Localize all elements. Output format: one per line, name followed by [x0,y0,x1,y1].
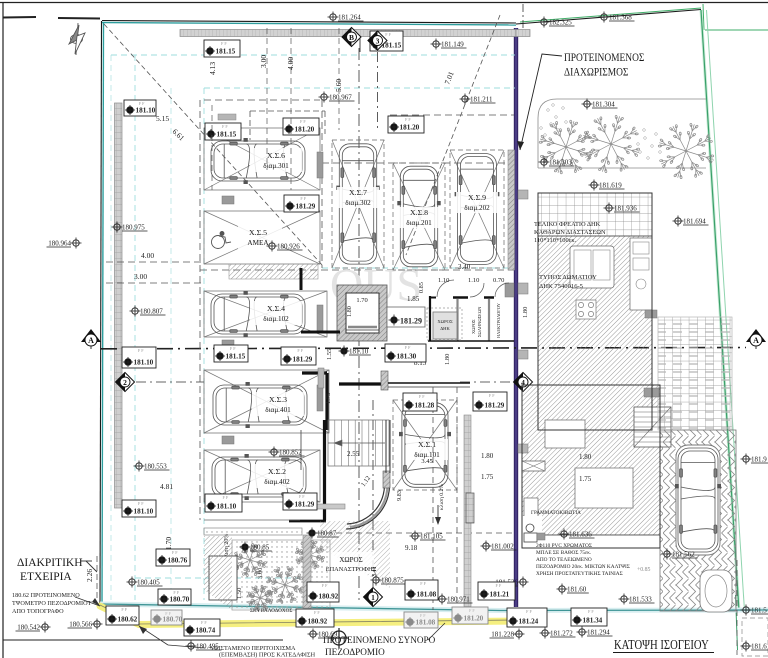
svg-text:F F: F F [222,124,228,129]
svg-text:ΓΡΑΜΜΑΤΟΚΙΒΩΤΙΑ: ΓΡΑΜΜΑΤΟΚΙΒΩΤΙΑ [531,510,581,516]
svg-text:181.34: 181.34 [583,617,603,625]
svg-text:ΚΑΘΑΡΩΝ ΔΙΑΣΤΑΣΕΩΝ: ΚΑΘΑΡΩΝ ΔΙΑΣΤΑΣΕΩΝ [534,229,606,236]
svg-text:1.80: 1.80 [579,453,592,461]
svg-text:διαμ.202: διαμ.202 [464,204,490,212]
svg-text:181.20: 181.20 [464,615,484,623]
svg-text:180.76: 180.76 [168,557,188,565]
svg-text:1.75: 1.75 [579,475,592,483]
svg-text:181.29: 181.29 [295,501,315,509]
svg-text:Χ.Σ.2: Χ.Σ.2 [268,467,286,476]
svg-text:181.08: 181.08 [417,591,437,599]
svg-text:F F: F F [322,583,328,588]
svg-text:F F: F F [299,494,305,499]
svg-text:180.70: 180.70 [170,596,190,604]
svg-text:180.85: 180.85 [250,544,270,552]
svg-text:F F: F F [297,348,303,353]
svg-text:F F: F F [405,117,411,122]
svg-text:1.85: 1.85 [407,295,420,303]
svg-text:F F: F F [201,620,207,625]
svg-text:180.74: 180.74 [196,627,216,635]
svg-text:181.6: 181.6 [751,643,767,651]
svg-text:180.542: 180.542 [17,624,40,632]
svg-text:181.694: 181.694 [683,218,706,226]
svg-text:2.55: 2.55 [347,450,360,458]
svg-text:181.15: 181.15 [217,131,237,139]
svg-text:181.29: 181.29 [485,402,505,410]
svg-text:ΠΡΟΤΕΙΝΟΜΕΝΟΣ: ΠΡΟΤΕΙΝΟΜΕΝΟΣ [564,51,644,64]
svg-text:181.15: 181.15 [216,48,236,56]
svg-text:F F: F F [230,346,236,351]
svg-text:180.971: 180.971 [447,596,470,604]
svg-text:9.18: 9.18 [405,544,418,552]
svg-text:Χ.Σ.6: Χ.Σ.6 [267,151,285,160]
svg-text:ΜΠΛΕ ΣΕ ΒΑΘΟΣ 75εκ.: ΜΠΛΕ ΣΕ ΒΑΘΟΣ 75εκ. [536,550,591,556]
svg-text:181.636: 181.636 [569,531,592,539]
svg-text:181.264: 181.264 [338,14,361,22]
svg-text:F F: F F [139,101,145,106]
svg-text:4.81: 4.81 [160,482,173,491]
svg-text:ΧΡΗΣΗ ΠΡΟΣΤΑΤΕΥΤΙΚΗΣ ΤΑΙΝΙΑΣ: ΧΡΗΣΗ ΠΡΟΣΤΑΤΕΥΤΙΚΗΣ ΤΑΙΝΙΑΣ [536,571,623,577]
svg-text:181.10: 181.10 [134,508,154,516]
svg-text:F F: F F [496,583,502,588]
svg-text:180.926: 180.926 [277,243,300,251]
svg-text:Χ.Σ.8: Χ.Σ.8 [410,208,428,217]
svg-text:1.80: 1.80 [346,306,353,317]
svg-text:1.80: 1.80 [522,307,529,318]
svg-text:1.10: 1.10 [438,277,449,284]
svg-text:0.85: 0.85 [418,282,425,293]
svg-text:181.29: 181.29 [296,203,316,211]
svg-text:F F: F F [138,348,144,353]
svg-text:181.228: 181.228 [491,631,514,639]
svg-text:180.92: 180.92 [319,593,339,601]
svg-text:B: B [349,33,354,42]
svg-text:3.00: 3.00 [134,272,147,281]
svg-text:F F: F F [419,394,425,399]
svg-text:181.619: 181.619 [599,182,622,190]
svg-text:3.00: 3.00 [257,568,264,579]
svg-text:ΣΚΥΒΑΛΟΔΟΧΟΣ: ΣΚΥΒΑΛΟΔΟΧΟΣ [250,608,292,614]
svg-text:181.304: 181.304 [592,101,615,109]
svg-text:181.533: 181.533 [629,596,652,604]
svg-text:180.405: 180.405 [137,579,160,587]
svg-text:Χ.Σ.7: Χ.Σ.7 [349,188,367,197]
svg-text:F F: F F [385,32,391,37]
svg-text:181.294: 181.294 [587,629,610,637]
svg-text:F F: F F [420,613,426,618]
svg-text:F F: F F [222,495,228,500]
svg-text:181.272: 181.272 [550,630,573,638]
svg-text:181.105: 181.105 [420,533,443,541]
svg-text:ΣΩΛΗΝΩΣΕΩΝ: ΣΩΛΗΝΩΣΕΩΝ [477,306,482,337]
svg-text:110*110*100εκ.: 110*110*100εκ. [534,237,577,244]
svg-text:181.20: 181.20 [295,126,315,134]
svg-text:F F: F F [300,119,306,124]
svg-text:F F: F F [420,581,426,586]
svg-text:F F: F F [221,41,227,46]
svg-text:182.325: 182.325 [549,19,572,27]
svg-text:180.92: 180.92 [308,618,328,626]
svg-text:180.967: 180.967 [329,94,352,102]
svg-text:F F: F F [138,501,144,506]
svg-text:1.80: 1.80 [481,452,494,460]
svg-text:F F: F F [469,608,475,613]
svg-text:A: A [753,336,759,345]
svg-text:181.29: 181.29 [400,317,422,326]
svg-text:180.566: 180.566 [69,621,92,629]
svg-text:ΠΡΟΤΕΙΝΟΜΕΝΟ ΣΥΝΟΡΟ: ΠΡΟΤΕΙΝΟΜΕΝΟ ΣΥΝΟΡΟ [323,635,436,645]
svg-text:181.211: 181.211 [470,96,493,104]
svg-text:Χ.Σ.9: Χ.Σ.9 [468,193,486,202]
svg-text:διαμ.401: διαμ.401 [265,406,291,414]
svg-text:181.28: 181.28 [415,402,435,410]
svg-text:181.002: 181.002 [491,543,514,551]
svg-text:181.10: 181.10 [134,359,154,367]
svg-text:1.75: 1.75 [325,393,332,404]
svg-text:180.70: 180.70 [163,616,183,624]
svg-text:F F: F F [314,610,320,615]
svg-text:180.62 ΠΡΟΤΕΙΝΟΜΕΝΟ: 180.62 ΠΡΟΤΕΙΝΟΜΕΝΟ [12,592,80,599]
svg-text:180.807: 180.807 [140,308,163,316]
svg-text:F F: F F [588,609,594,614]
svg-text:ΠΕΖΟΔΡΟΜΙΟ 20εκ. ΜΙΚΤΩΝ ΚΑΛΤΨΙ: ΠΕΖΟΔΡΟΜΙΟ 20εκ. ΜΙΚΤΩΝ ΚΑΛΤΨΙΣ [536,564,630,570]
svg-text:180.852: 180.852 [279,449,302,457]
svg-text:3.40: 3.40 [458,263,471,271]
svg-text:ΔΗΚ: ΔΗΚ [440,326,450,331]
svg-text:3.45: 3.45 [421,458,432,465]
svg-text:(ΕΠΕΜΒΑΣΗ) ΠΡΟΣ ΚΑΤΕΔΑΦΙΣΗ: (ΕΠΕΜΒΑΣΗ) ΠΡΟΣ ΚΑΤΕΔΑΦΙΣΗ [219,652,316,658]
svg-text:5.15: 5.15 [156,114,169,123]
svg-text:181.15: 181.15 [226,353,246,361]
svg-text:181.5: 181.5 [751,607,767,615]
svg-text:181.149: 181.149 [441,41,464,49]
svg-text:180.964: 180.964 [48,240,71,248]
svg-text:Χ.Σ.5: Χ.Σ.5 [249,228,267,237]
svg-text:ΤΨΟΜΕΤΡΟ ΠΕΖΟΔΡΟΜΙΟΤ: ΤΨΟΜΕΤΡΟ ΠΕΖΟΔΡΟΜΙΟΤ [12,600,92,607]
svg-text:1.55: 1.55 [326,349,333,360]
svg-text:1.75: 1.75 [481,473,494,481]
svg-text:ΧΩΡΟΣ: ΧΩΡΟΣ [339,556,362,564]
svg-text:ΧΩΡΟΣ: ΧΩΡΟΣ [437,319,453,324]
svg-text:181.29: 181.29 [293,356,313,364]
svg-text:181.20: 181.20 [400,124,420,132]
svg-text:1.70: 1.70 [164,537,173,550]
svg-text:κλιση 0.2%: κλιση 0.2% [439,484,445,510]
svg-text:181.936: 181.936 [614,205,637,213]
svg-text:180.875: 180.875 [381,577,404,585]
svg-text:3.41: 3.41 [372,567,378,578]
svg-text:181.08: 181.08 [416,619,436,627]
svg-text:180.553: 180.553 [144,463,167,471]
svg-text:διαμ.302: διαμ.302 [345,199,371,207]
svg-text:ΑΠΟ ΤΟ ΤΕΛΕΙΩΜΕΝΟ: ΑΠΟ ΤΟ ΤΕΛΕΙΩΜΕΝΟ [536,557,592,563]
svg-text:ΔΗΚ 7540016-5: ΔΗΚ 7540016-5 [539,283,584,290]
svg-text:181.21: 181.21 [490,591,510,599]
svg-text:διαμ.402: διαμ.402 [264,478,290,486]
svg-text:181.368: 181.368 [609,14,632,22]
svg-text:διαμ.102: διαμ.102 [263,315,289,323]
svg-text:ΤΥΠΟΣ ΔΩΜΑΤΙΟΥ: ΤΥΠΟΣ ΔΩΜΑΤΙΟΥ [539,274,597,281]
svg-text:F F: F F [405,345,411,350]
svg-text:A: A [88,336,94,345]
svg-text:ΕΤΧΕΙΡΙΑ: ΕΤΧΕΙΡΙΑ [20,571,72,583]
svg-text:181.10: 181.10 [349,348,369,356]
svg-text:4.00: 4.00 [141,251,154,260]
svg-text:1.80: 1.80 [444,354,451,365]
svg-text:181.24: 181.24 [519,618,539,626]
svg-text:1.50: 1.50 [236,588,243,599]
svg-text:180.975: 180.975 [122,224,145,232]
svg-text:ΔΙΑΧΩΡΙΣΜΟΣ: ΔΙΑΧΩΡΙΣΜΟΣ [564,66,628,79]
svg-text:4.13: 4.13 [208,62,217,75]
svg-text:1.10: 1.10 [468,277,479,284]
svg-text:ΑΠΟ ΤΟΠΟΓΡΑΦΟ: ΑΠΟ ΤΟΠΟΓΡΑΦΟ [12,608,64,615]
svg-text:181.9: 181.9 [751,456,767,464]
svg-text:διαμ.201: διαμ.201 [406,219,432,227]
svg-text:ΔΙΑΚΡΙΤΙΚΗ: ΔΙΑΚΡΙΤΙΚΗ [17,557,83,569]
svg-text:F F: F F [173,590,179,595]
svg-text:ΠΕΖΟΔΡΟΜΙΟ: ΠΕΖΟΔΡΟΜΙΟ [325,647,385,657]
svg-text:9.83: 9.83 [396,490,403,501]
svg-text:+0.85: +0.85 [637,567,651,573]
svg-text:180.87: 180.87 [317,530,337,538]
svg-text:181.562: 181.562 [672,551,695,559]
svg-text:181.30: 181.30 [397,353,417,361]
svg-text:ΕΠΑΝΑΣΤΡΟΦΗΣ: ΕΠΑΝΑΣΤΡΟΦΗΣ [326,566,377,573]
svg-text:181.10: 181.10 [217,503,237,511]
svg-text:Χ.Σ.3: Χ.Σ.3 [269,395,287,404]
svg-text:2: 2 [123,378,127,387]
svg-text:F F: F F [300,196,306,201]
svg-text:5.60: 5.60 [334,79,343,92]
svg-text:181.303: 181.303 [549,159,572,167]
svg-text:ΗΛΕΚΤΡΟΛΟΓΟΥ: ΗΛΕΚΤΡΟΛΟΓΟΥ [496,302,501,338]
svg-text:ΑΜΕΑ: ΑΜΕΑ [247,239,269,247]
svg-text:1: 1 [371,593,375,602]
svg-text:180.62: 180.62 [118,616,138,624]
svg-text:2.26: 2.26 [85,569,94,582]
svg-text:0.70: 0.70 [493,277,504,284]
svg-text:F F: F F [121,607,127,612]
svg-text:181.10: 181.10 [136,107,156,115]
svg-text:4.00: 4.00 [286,57,295,70]
svg-text:F F: F F [526,609,532,614]
svg-text:1.70: 1.70 [356,297,367,304]
svg-text:181.60: 181.60 [567,586,587,594]
svg-text:ΚΑΤΟΨΗ ΙΣΟΓΕΙΟΥ: ΚΑΤΟΨΗ ΙΣΟΓΕΙΟΥ [614,637,709,653]
svg-text:ΧΩΡΟΣ: ΧΩΡΟΣ [471,319,476,334]
svg-text:F F: F F [172,550,178,555]
svg-text:Χ.Σ.4: Χ.Σ.4 [267,304,285,313]
svg-text:F F: F F [489,393,495,398]
svg-text:ΤΕΛΙΚΟ ΦΡΕΑΤΙΟ ΔΗΚ: ΤΕΛΙΚΟ ΦΡΕΑΤΙΟ ΔΗΚ [534,221,601,228]
svg-text:3: 3 [376,36,380,45]
